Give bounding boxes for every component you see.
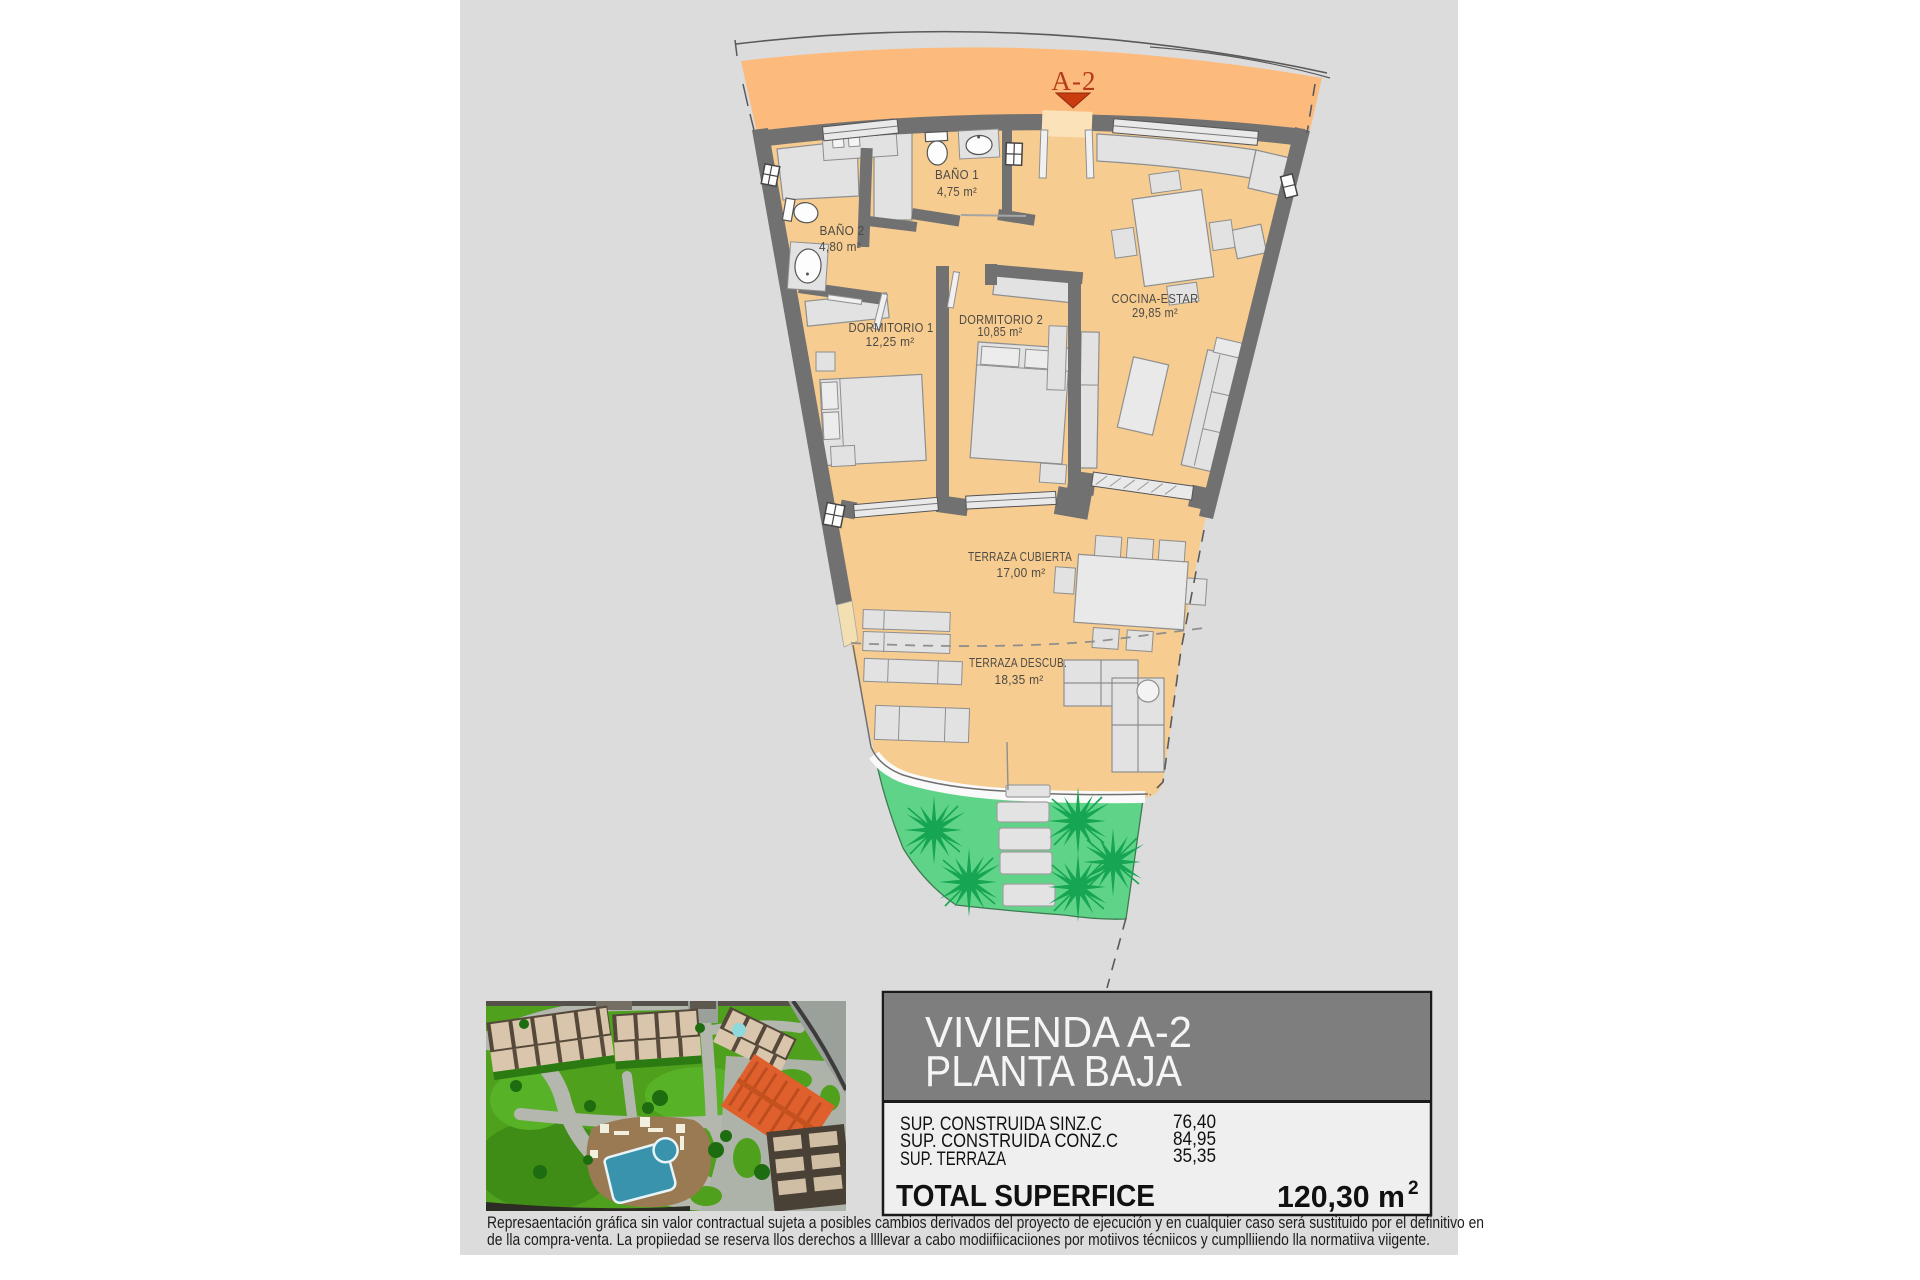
svg-text:12,25 m²: 12,25 m² bbox=[866, 334, 915, 349]
svg-text:A-2: A-2 bbox=[1052, 66, 1097, 96]
svg-text:18,35 m²: 18,35 m² bbox=[995, 672, 1044, 687]
svg-text:17,00 m²: 17,00 m² bbox=[997, 565, 1046, 580]
svg-text:35,35: 35,35 bbox=[1173, 1146, 1216, 1167]
svg-text:TERRAZA CUBIERTA: TERRAZA CUBIERTA bbox=[968, 549, 1072, 564]
svg-text:DORMITORIO 1: DORMITORIO 1 bbox=[849, 320, 934, 335]
svg-text:de lla compra-venta. La propii: de lla compra-venta. La propiiedad se re… bbox=[487, 1230, 1430, 1249]
svg-text:TERRAZA DESCUB.: TERRAZA DESCUB. bbox=[969, 655, 1067, 670]
svg-text:SUP. TERRAZA: SUP. TERRAZA bbox=[900, 1149, 1006, 1170]
svg-text:TOTAL SUPERFICE: TOTAL SUPERFICE bbox=[896, 1178, 1155, 1213]
svg-text:BAÑO 2: BAÑO 2 bbox=[820, 223, 865, 238]
svg-text:10,85 m²: 10,85 m² bbox=[978, 324, 1023, 339]
svg-text:COCINA-ESTAR: COCINA-ESTAR bbox=[1112, 291, 1199, 306]
svg-text:4,80 m²: 4,80 m² bbox=[819, 239, 861, 254]
svg-text:120,30 m: 120,30 m bbox=[1277, 1179, 1405, 1214]
svg-text:4,75 m²: 4,75 m² bbox=[937, 184, 977, 199]
svg-text:BAÑO 1: BAÑO 1 bbox=[935, 167, 979, 182]
svg-text:PLANTA BAJA: PLANTA BAJA bbox=[925, 1047, 1183, 1096]
svg-text:2: 2 bbox=[1408, 1178, 1419, 1199]
svg-text:29,85 m²: 29,85 m² bbox=[1132, 305, 1178, 320]
